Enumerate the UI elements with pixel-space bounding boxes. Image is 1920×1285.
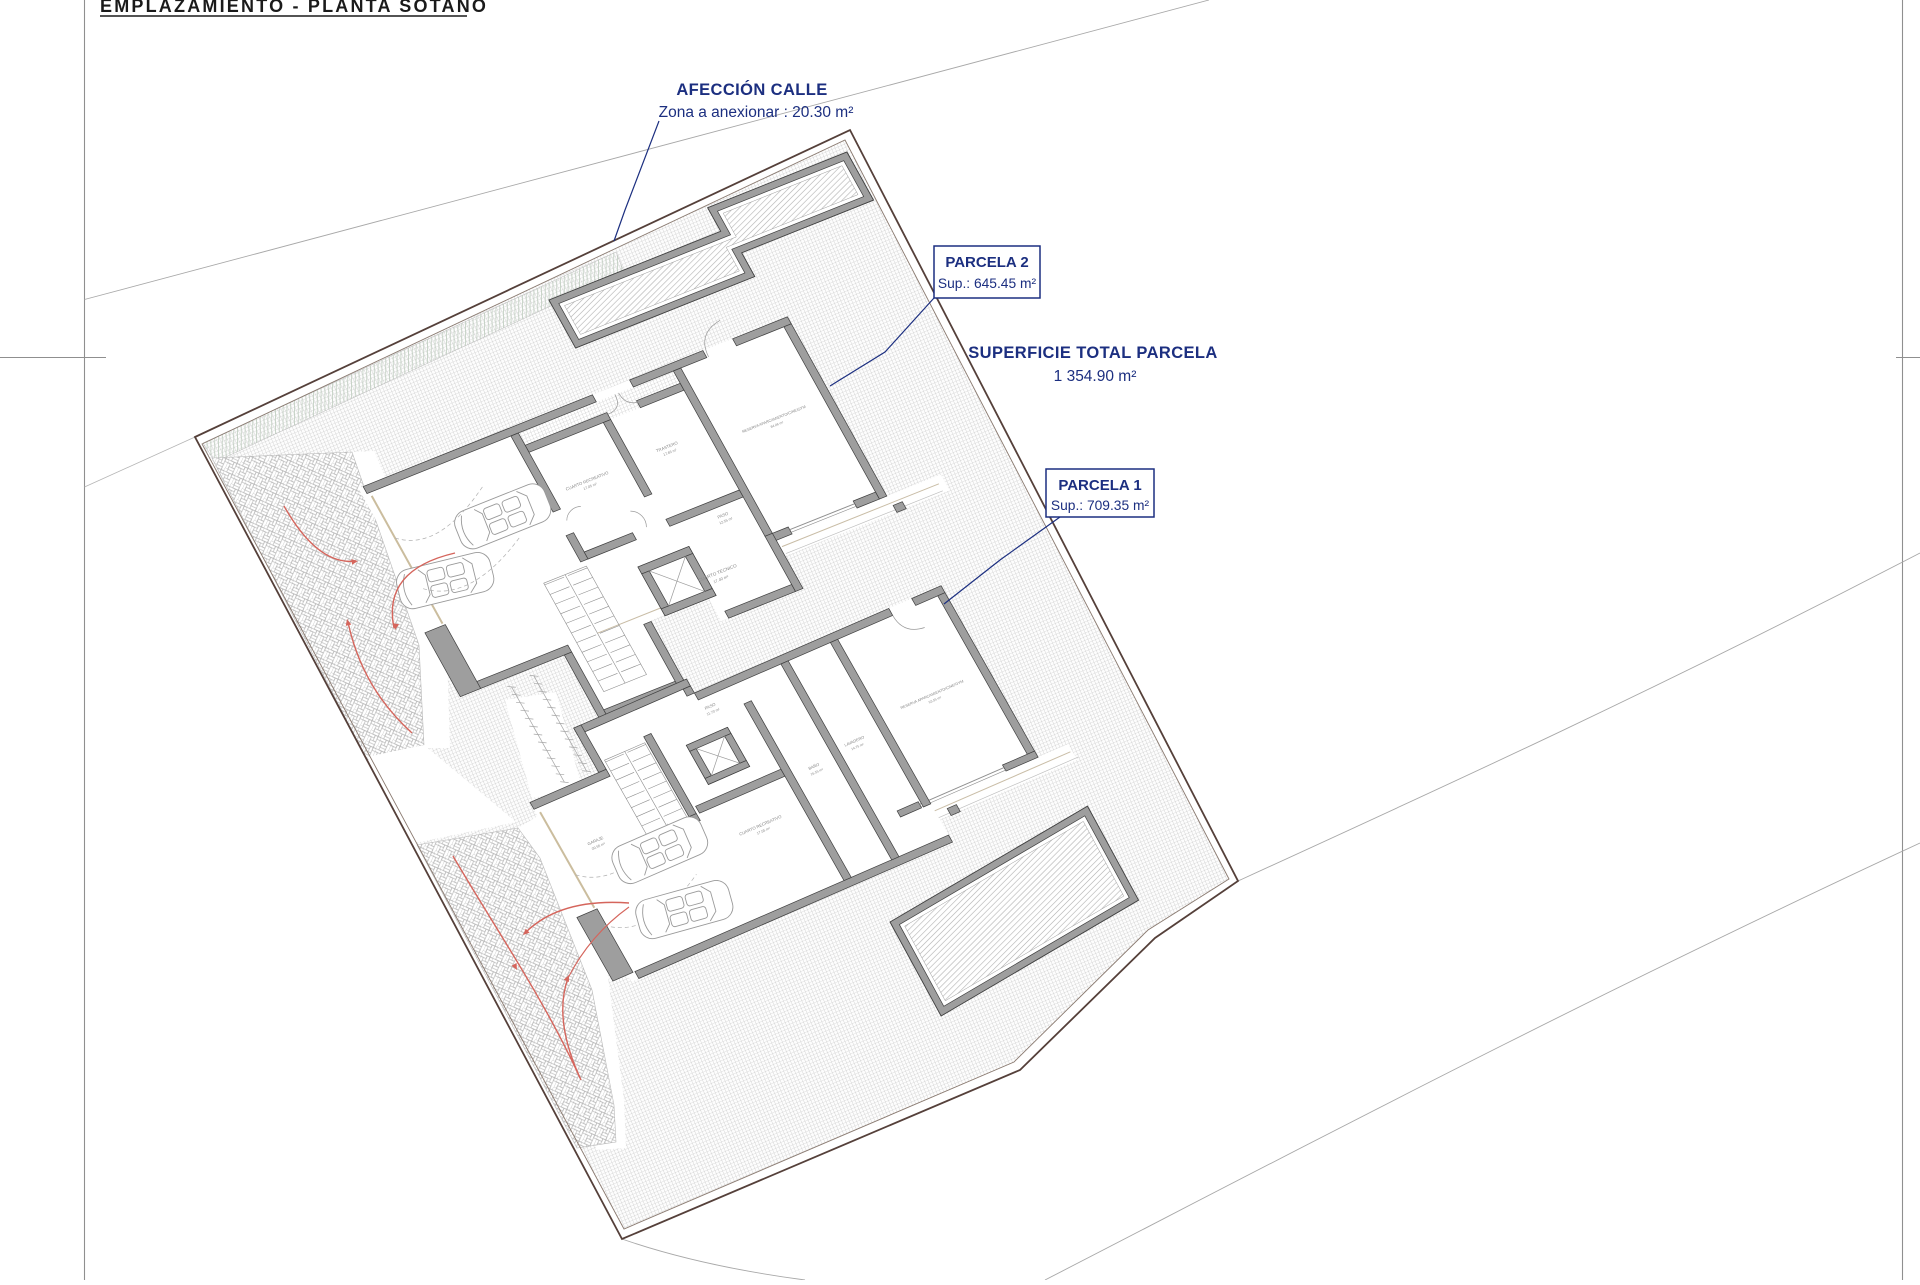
svg-text:PARCELA 2: PARCELA 2 xyxy=(945,254,1028,271)
svg-text:Sup.: 645.45 m²: Sup.: 645.45 m² xyxy=(938,276,1037,291)
svg-text:Zona a anexionar : 20.30 m²: Zona a anexionar : 20.30 m² xyxy=(659,104,854,121)
svg-text:EMPLAZAMIENTO - PLANTA SÓTANO: EMPLAZAMIENTO - PLANTA SÓTANO xyxy=(100,0,488,16)
svg-text:PARCELA 1: PARCELA 1 xyxy=(1058,477,1141,494)
svg-text:1 354.90 m²: 1 354.90 m² xyxy=(1054,368,1137,385)
svg-text:SUPERFICIE TOTAL PARCELA: SUPERFICIE TOTAL PARCELA xyxy=(968,344,1217,362)
svg-text:Sup.: 709.35 m²: Sup.: 709.35 m² xyxy=(1051,498,1150,513)
svg-text:AFECCIÓN CALLE: AFECCIÓN CALLE xyxy=(676,80,827,99)
